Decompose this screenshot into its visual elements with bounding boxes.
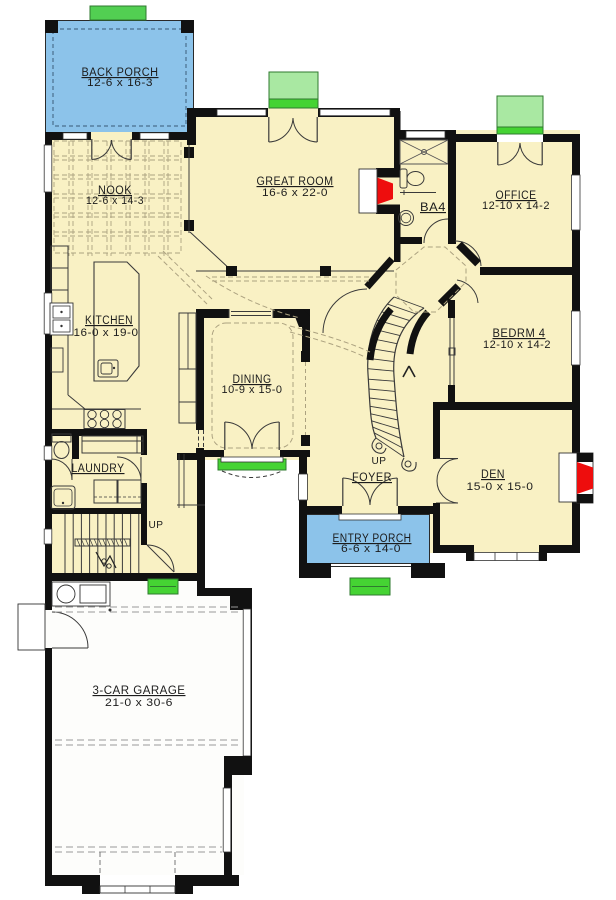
svg-text:DEN: DEN [481,469,505,481]
svg-text:UP: UP [372,455,387,467]
svg-text:10-9 x 15-0: 10-9 x 15-0 [222,384,283,396]
svg-text:15-0 x 15-0: 15-0 x 15-0 [467,481,534,493]
svg-text:21-0 x 30-6: 21-0 x 30-6 [105,697,173,709]
svg-text:KITCHEN: KITCHEN [85,315,133,327]
svg-text:12-6 x 14-3: 12-6 x 14-3 [86,195,144,207]
svg-text:16-6 x 22-0: 16-6 x 22-0 [262,187,328,199]
svg-text:6-6 x 14-0: 6-6 x 14-0 [341,543,401,555]
svg-text:16-0 x 19-0: 16-0 x 19-0 [74,327,139,339]
svg-text:12-6 x 16-3: 12-6 x 16-3 [87,77,153,89]
svg-text:3-CAR GARAGE: 3-CAR GARAGE [93,685,186,697]
svg-text:LAUNDRY: LAUNDRY [72,463,125,475]
svg-text:12-10 x 14-2: 12-10 x 14-2 [483,339,551,351]
svg-text:UP: UP [149,519,164,531]
svg-text:BA4: BA4 [420,202,446,214]
svg-text:FOYER: FOYER [352,472,392,484]
svg-text:12-10 x 14-2: 12-10 x 14-2 [482,200,550,212]
